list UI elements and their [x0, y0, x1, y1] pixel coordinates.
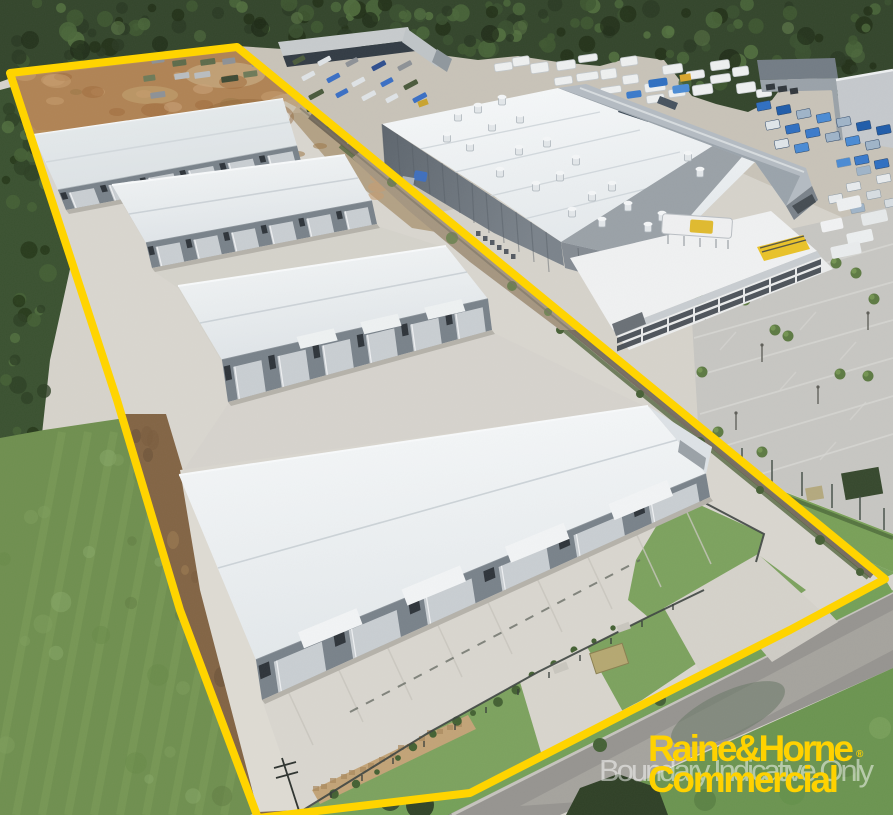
svg-text:Commercial: Commercial	[648, 759, 838, 800]
svg-text:®: ®	[856, 749, 864, 760]
